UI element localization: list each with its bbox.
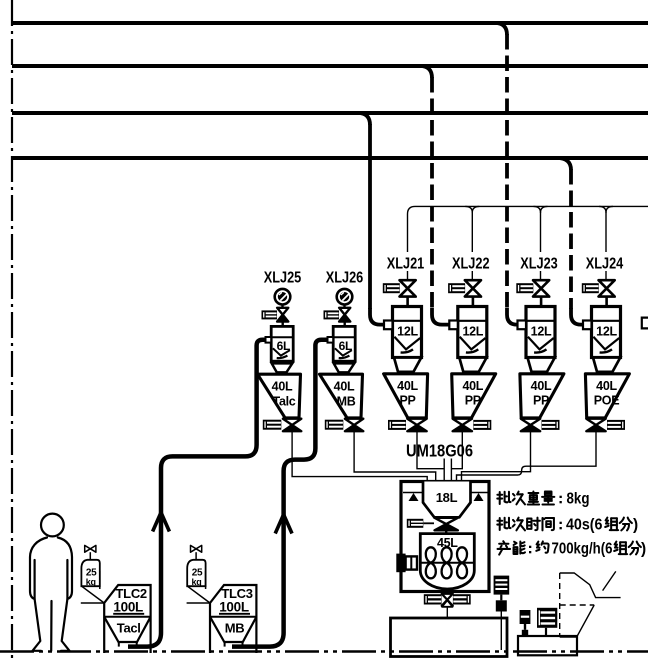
svg-text:40L: 40L — [334, 380, 355, 394]
svg-text:XLJ25: XLJ25 — [264, 270, 302, 287]
svg-text:12L: 12L — [397, 325, 418, 339]
svg-text:40L: 40L — [462, 379, 483, 393]
svg-text:POE: POE — [594, 394, 620, 408]
svg-text:40s(6: 40s(6 — [566, 517, 603, 534]
svg-text:Tacl: Tacl — [117, 621, 141, 636]
svg-text:40L: 40L — [531, 379, 552, 393]
svg-text:18L: 18L — [436, 490, 458, 505]
svg-text:kg: kg — [86, 577, 96, 587]
svg-text:XLJ23: XLJ23 — [520, 256, 558, 273]
svg-text:MB: MB — [225, 621, 245, 636]
svg-text:40L: 40L — [397, 379, 418, 393]
svg-text:UM18G06: UM18G06 — [406, 441, 473, 461]
svg-text:XLJ24: XLJ24 — [586, 256, 624, 273]
svg-text:PP: PP — [533, 394, 549, 408]
svg-text:40L: 40L — [596, 379, 617, 393]
svg-text:PP: PP — [399, 394, 415, 408]
svg-text:XLJ22: XLJ22 — [452, 256, 490, 273]
svg-text:XLJ21: XLJ21 — [387, 256, 425, 273]
svg-text:MB: MB — [337, 395, 356, 409]
svg-text:40L: 40L — [272, 380, 293, 394]
svg-text:100L: 100L — [219, 600, 249, 615]
svg-text:XLJ26: XLJ26 — [326, 270, 364, 287]
svg-text:Talc: Talc — [273, 395, 296, 409]
svg-text:PP: PP — [465, 394, 481, 408]
svg-text:700kg/h(6: 700kg/h(6 — [552, 541, 613, 558]
svg-text:12L: 12L — [462, 325, 483, 339]
svg-text:): ) — [641, 541, 646, 558]
svg-text:): ) — [633, 517, 638, 534]
svg-text:100L: 100L — [113, 600, 143, 615]
svg-text:8kg: 8kg — [567, 491, 590, 508]
svg-text:kg: kg — [192, 577, 202, 587]
svg-text:12L: 12L — [531, 325, 552, 339]
svg-text:12L: 12L — [596, 325, 617, 339]
